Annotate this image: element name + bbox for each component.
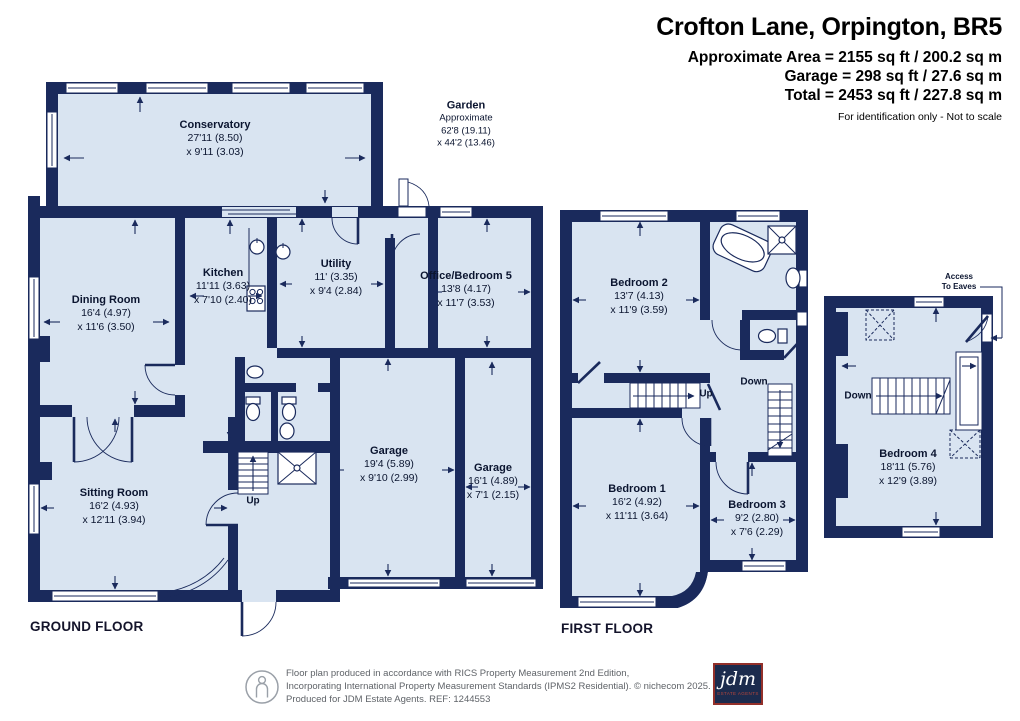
floor-caption-first: FIRST FLOOR (561, 621, 653, 636)
ground-floor-plan (28, 82, 543, 636)
rics-person-icon (244, 669, 280, 710)
stairs-up-label-first: Up (699, 389, 712, 400)
room-label-bedroom4: Bedroom 4 18'11 (5.76) x 12'9 (3.89) (879, 447, 937, 489)
room-label-bedroom2: Bedroom 2 13'7 (4.13) x 11'9 (3.59) (610, 276, 667, 318)
room-label-office: Office/Bedroom 5 13'8 (4.17) x 11'7 (3.5… (420, 269, 512, 311)
stairs-down-label-second: Down (844, 391, 871, 402)
room-label-bedroom1: Bedroom 1 16'2 (4.92) x 11'11 (3.64) (606, 482, 668, 524)
shower-tray-icon (278, 452, 316, 484)
stairs-up-label-ground: Up (246, 496, 259, 507)
jdm-logo-text: jdm (720, 670, 756, 689)
first-stairs-down-icon (768, 384, 792, 456)
footer-line-3: Produced for JDM Estate Agents. REF: 124… (286, 693, 711, 706)
access-to-eaves-label: Access To Eaves (942, 272, 977, 292)
wc1-toilet-icon (246, 397, 260, 421)
second-floor-plan (824, 287, 1002, 538)
garage-area-line: Garage = 298 sq ft / 27.6 sq m (656, 67, 1002, 86)
wc1-sink-icon (247, 366, 263, 378)
scale-disclaimer: For identification only - Not to scale (656, 111, 1002, 123)
floor-caption-ground: GROUND FLOOR (30, 619, 143, 634)
header: Crofton Lane, Orpington, BR5 Approximate… (656, 13, 1002, 123)
toilet-icon (759, 329, 788, 343)
ground-stairs-icon (238, 452, 268, 494)
second-stairs-icon (872, 378, 950, 414)
room-label-garage2: Garage 16'1 (4.89) x 7'1 (2.15) (467, 461, 519, 503)
approximate-area-line: Approximate Area = 2155 sq ft / 200.2 sq… (656, 48, 1002, 67)
room-label-garage1: Garage 19'4 (5.89) x 9'10 (2.99) (360, 444, 418, 486)
jdm-logo: jdm ESTATE AGENTS (713, 663, 763, 705)
room-label-sitting: Sitting Room 16'2 (4.93) x 12'11 (3.94) (80, 486, 148, 528)
total-area-line: Total = 2453 sq ft / 227.8 sq m (656, 86, 1002, 105)
stairs-down-label-first: Down (740, 377, 767, 388)
dormer-recess (956, 352, 982, 430)
floorplan-page: Crofton Lane, Orpington, BR5 Approximate… (0, 0, 1020, 721)
first-stairs-up-icon (630, 383, 700, 408)
basin-icon (786, 268, 807, 288)
first-floor-plan (560, 210, 808, 608)
room-label-dining: Dining Room 16'4 (4.97) x 11'6 (3.50) (72, 293, 140, 335)
room-label-kitchen: Kitchen 11'11 (3.63) x 7'10 (2.40) (194, 266, 252, 308)
room-label-bedroom3: Bedroom 3 9'2 (2.80) x 7'6 (2.29) (728, 498, 785, 540)
footer-line-1: Floor plan produced in accordance with R… (286, 667, 711, 680)
wc2-toilet-icon (282, 397, 296, 421)
wc2-sink-icon (280, 423, 294, 439)
footer-disclaimer: Floor plan produced in accordance with R… (286, 667, 711, 706)
shower-icon (768, 226, 796, 254)
room-label-utility: Utility 11' (3.35) x 9'4 (2.84) (310, 257, 362, 299)
jdm-logo-subtext: ESTATE AGENTS (717, 691, 759, 696)
footer-line-2: Incorporating International Property Mea… (286, 680, 711, 693)
garden-label: Garden Approximate 62'8 (19.11) x 44'2 (… (437, 98, 495, 149)
page-title: Crofton Lane, Orpington, BR5 (656, 13, 1002, 42)
room-label-conservatory: Conservatory 27'11 (8.50) x 9'11 (3.03) (180, 118, 251, 160)
